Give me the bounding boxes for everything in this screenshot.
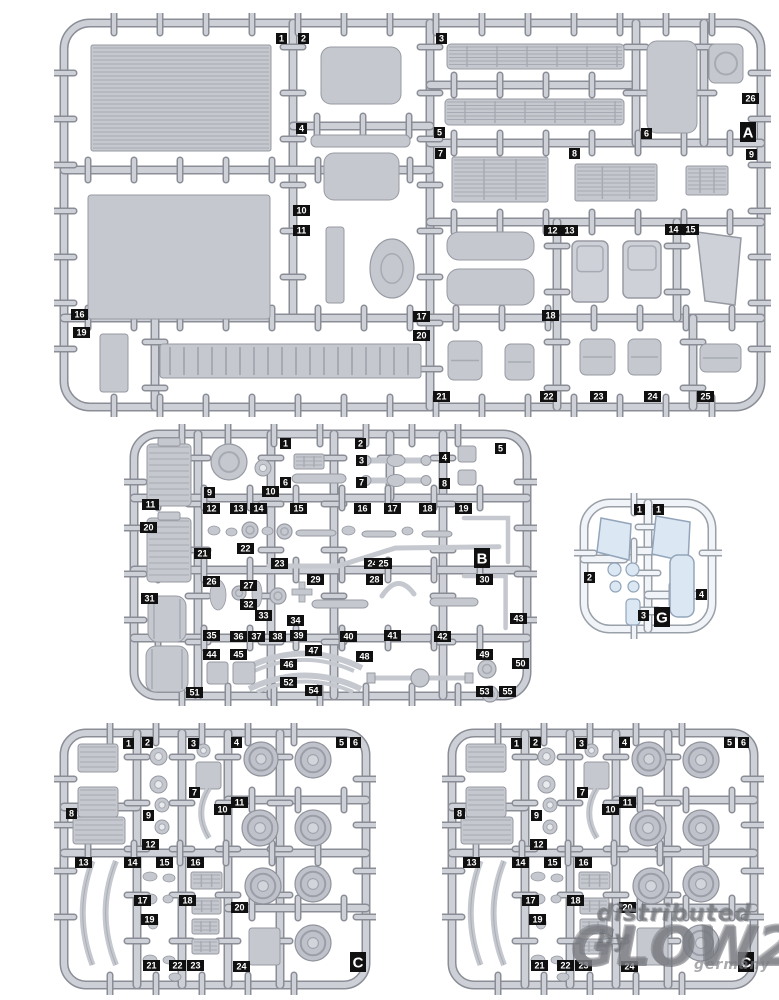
part-number-chip: 27 — [240, 580, 257, 591]
svg-text:23: 23 — [190, 961, 200, 971]
part-number-chip: 43 — [510, 613, 527, 624]
svg-text:48: 48 — [359, 652, 369, 662]
svg-text:25: 25 — [378, 559, 388, 569]
part-number-chip: 8 — [569, 148, 580, 159]
part-number-chip: 6 — [350, 737, 361, 748]
svg-text:15: 15 — [685, 225, 695, 235]
svg-text:17: 17 — [387, 504, 397, 514]
part-number-chip: 14 — [124, 857, 141, 868]
svg-text:19: 19 — [532, 915, 542, 925]
part-number-chip: 3 — [436, 33, 447, 44]
part-number-chip: 1 — [280, 438, 291, 449]
part-number-chip: 10 — [214, 804, 231, 815]
svg-text:2: 2 — [358, 439, 363, 449]
part-number-chip: 2 — [530, 737, 541, 748]
part-number-chip: 51 — [186, 687, 203, 698]
part-number-chip: 11 — [142, 499, 159, 510]
svg-text:16: 16 — [190, 858, 200, 868]
svg-text:20: 20 — [622, 903, 632, 913]
part-number-chip: 30 — [476, 574, 493, 585]
part-number-chip: 12 — [203, 503, 220, 514]
svg-text:6: 6 — [353, 738, 358, 748]
part-number-chip: 7 — [435, 148, 446, 159]
svg-text:7: 7 — [359, 478, 364, 488]
part-number-chip: 4 — [696, 589, 707, 600]
sprue-letter-chip: C — [350, 952, 366, 972]
svg-text:17: 17 — [525, 896, 535, 906]
svg-text:18: 18 — [422, 504, 432, 514]
svg-text:1: 1 — [283, 439, 288, 449]
part-number-chip: 23 — [575, 960, 592, 971]
part-number-chip: 13 — [561, 225, 578, 236]
svg-text:14: 14 — [127, 858, 137, 868]
svg-text:9: 9 — [749, 150, 754, 160]
svg-text:24: 24 — [236, 962, 246, 972]
svg-text:11: 11 — [235, 798, 245, 808]
part-number-chip: 4 — [231, 737, 242, 748]
svg-text:35: 35 — [206, 631, 216, 641]
svg-text:15: 15 — [293, 504, 303, 514]
part-number-chip: 7 — [577, 787, 588, 798]
svg-text:41: 41 — [387, 631, 397, 641]
sprue-letter-chip: B — [474, 548, 490, 568]
svg-text:21: 21 — [197, 549, 207, 559]
part-number-chip: 12 — [142, 839, 159, 850]
svg-text:1: 1 — [126, 739, 131, 749]
part-number-chip: 33 — [255, 610, 272, 621]
part-number-chip: 9 — [746, 149, 757, 160]
part-number-chip: 21 — [143, 960, 160, 971]
svg-text:11: 11 — [297, 226, 307, 236]
part-number-chip: 15 — [544, 857, 561, 868]
svg-text:5: 5 — [437, 128, 442, 138]
part-number-chip: 17 — [413, 311, 430, 322]
part-number-chip: 26 — [742, 93, 759, 104]
svg-text:16: 16 — [357, 504, 367, 514]
svg-text:4: 4 — [299, 124, 304, 134]
svg-text:9: 9 — [146, 811, 151, 821]
svg-text:12: 12 — [533, 840, 543, 850]
svg-text:B: B — [477, 551, 488, 568]
part-number-chip: 4 — [439, 452, 450, 463]
part-number-chip: 21 — [433, 391, 450, 402]
svg-text:22: 22 — [240, 544, 250, 554]
svg-text:44: 44 — [206, 650, 216, 660]
part-number-chip: 52 — [280, 677, 297, 688]
part-number-chip: 9 — [204, 487, 215, 498]
part-number-chip: 19 — [455, 503, 472, 514]
svg-text:18: 18 — [182, 896, 192, 906]
svg-text:3: 3 — [191, 739, 196, 749]
svg-text:9: 9 — [534, 811, 539, 821]
svg-text:5: 5 — [339, 738, 344, 748]
svg-text:52: 52 — [283, 678, 293, 688]
svg-text:12: 12 — [206, 504, 216, 514]
part-number-chip: 25 — [697, 391, 714, 402]
part-number-chip: 49 — [476, 649, 493, 660]
part-number-chip: 24 — [621, 961, 638, 972]
part-number-chip: 16 — [575, 857, 592, 868]
svg-text:39: 39 — [293, 631, 303, 641]
part-number-chip: 6 — [280, 477, 291, 488]
svg-text:24: 24 — [647, 392, 657, 402]
part-number-chip: 11 — [231, 797, 248, 808]
svg-text:13: 13 — [564, 226, 574, 236]
svg-text:43: 43 — [513, 614, 523, 624]
svg-text:10: 10 — [265, 487, 275, 497]
svg-text:12: 12 — [145, 840, 155, 850]
part-number-chip: 3 — [638, 610, 649, 621]
sprue-letter-chip: A — [740, 122, 756, 142]
svg-text:50: 50 — [515, 659, 525, 669]
part-number-chip: 3 — [188, 738, 199, 749]
svg-text:51: 51 — [189, 688, 199, 698]
part-number-chip: 8 — [439, 478, 450, 489]
svg-text:23: 23 — [593, 392, 603, 402]
part-number-chip: 35 — [203, 630, 220, 641]
svg-text:29: 29 — [310, 575, 320, 585]
svg-text:8: 8 — [572, 149, 577, 159]
svg-text:22: 22 — [560, 961, 570, 971]
part-number-chip: 22 — [557, 960, 574, 971]
svg-text:3: 3 — [439, 34, 444, 44]
part-number-chip: 4 — [619, 737, 630, 748]
svg-text:6: 6 — [644, 129, 649, 139]
svg-text:3: 3 — [359, 456, 364, 466]
svg-text:11: 11 — [146, 500, 156, 510]
part-number-chip: 32 — [240, 599, 257, 610]
part-number-chip: 16 — [71, 309, 88, 320]
part-number-chip: 9 — [531, 810, 542, 821]
sprue-g-drawing: 11234G — [574, 493, 722, 639]
part-number-chip: 1 — [634, 504, 645, 515]
part-number-chip: 5 — [336, 737, 347, 748]
part-number-chip: 2 — [355, 438, 366, 449]
part-number-chip: 23 — [590, 391, 607, 402]
part-number-chip: 24 — [644, 391, 661, 402]
svg-text:19: 19 — [144, 915, 154, 925]
part-number-chip: 48 — [356, 651, 373, 662]
part-number-chip: 23 — [271, 558, 288, 569]
svg-text:C: C — [741, 955, 752, 972]
part-number-chip: 16 — [187, 857, 204, 868]
svg-text:21: 21 — [146, 961, 156, 971]
part-number-chip: 14 — [665, 224, 682, 235]
part-number-chip: 19 — [141, 914, 158, 925]
part-number-chip: 13 — [463, 857, 480, 868]
part-number-chip: 15 — [156, 857, 173, 868]
svg-text:8: 8 — [69, 809, 74, 819]
svg-text:9: 9 — [207, 488, 212, 498]
svg-text:7: 7 — [580, 788, 585, 798]
part-number-chip: 28 — [366, 574, 383, 585]
svg-text:7: 7 — [192, 788, 197, 798]
part-number-chip: 41 — [384, 630, 401, 641]
part-number-chip: 13 — [75, 857, 92, 868]
part-number-chip: 8 — [454, 808, 465, 819]
part-number-chip: 47 — [305, 645, 322, 656]
part-number-chip: 22 — [540, 391, 557, 402]
svg-text:37: 37 — [251, 632, 261, 642]
part-number-chip: 10 — [262, 486, 279, 497]
part-number-chip: 5 — [434, 127, 445, 138]
svg-text:15: 15 — [547, 858, 557, 868]
svg-text:36: 36 — [233, 632, 243, 642]
svg-text:30: 30 — [479, 575, 489, 585]
svg-text:19: 19 — [458, 504, 468, 514]
svg-text:8: 8 — [442, 479, 447, 489]
svg-text:20: 20 — [234, 903, 244, 913]
svg-text:34: 34 — [290, 616, 300, 626]
part-number-chip: 42 — [434, 631, 451, 642]
svg-text:20: 20 — [416, 331, 426, 341]
part-number-chip: 39 — [290, 630, 307, 641]
svg-text:23: 23 — [578, 961, 588, 971]
part-number-chip: 1 — [511, 738, 522, 749]
part-number-chip: 24 — [233, 961, 250, 972]
svg-text:17: 17 — [416, 312, 426, 322]
svg-text:22: 22 — [543, 392, 553, 402]
part-number-chip: 17 — [522, 895, 539, 906]
svg-text:55: 55 — [502, 687, 512, 697]
part-number-chip: 21 — [531, 960, 548, 971]
svg-text:10: 10 — [296, 206, 306, 216]
svg-text:5: 5 — [727, 738, 732, 748]
part-number-chip: 29 — [307, 574, 324, 585]
part-number-chip: 18 — [179, 895, 196, 906]
svg-text:23: 23 — [274, 559, 284, 569]
part-number-chip: 38 — [269, 631, 286, 642]
svg-text:25: 25 — [700, 392, 710, 402]
svg-text:4: 4 — [234, 738, 239, 748]
part-number-chip: 55 — [499, 686, 516, 697]
part-number-chip: 14 — [250, 503, 267, 514]
svg-text:13: 13 — [466, 858, 476, 868]
svg-text:14: 14 — [253, 504, 263, 514]
svg-text:26: 26 — [206, 577, 216, 587]
part-number-chip: 1 — [653, 504, 664, 515]
part-number-chip: 7 — [356, 477, 367, 488]
svg-text:13: 13 — [78, 858, 88, 868]
part-number-chip: 20 — [231, 902, 248, 913]
sprue-letter-chip: G — [654, 607, 670, 627]
svg-text:38: 38 — [272, 632, 282, 642]
svg-text:27: 27 — [243, 581, 253, 591]
svg-text:20: 20 — [143, 523, 153, 533]
part-number-chip: 2 — [584, 572, 595, 583]
part-number-chip: 31 — [141, 593, 158, 604]
svg-text:18: 18 — [570, 896, 580, 906]
part-number-chip: 2 — [142, 737, 153, 748]
part-number-chip: 25 — [375, 558, 392, 569]
part-number-chip: 14 — [512, 857, 529, 868]
svg-text:21: 21 — [534, 961, 544, 971]
svg-text:47: 47 — [308, 646, 318, 656]
sprue-layout-sheet: 1232694567810111213141516191720182122232… — [0, 0, 779, 1000]
part-number-chip: 37 — [248, 631, 265, 642]
part-number-chip: 1 — [123, 738, 134, 749]
part-number-chip: 22 — [169, 960, 186, 971]
svg-text:C: C — [353, 955, 364, 972]
part-number-chip: 11 — [619, 797, 636, 808]
part-number-chip: 17 — [134, 895, 151, 906]
svg-text:45: 45 — [233, 650, 243, 660]
sprue-letter-chip: C — [738, 952, 754, 972]
part-number-chip: 18 — [567, 895, 584, 906]
part-number-chip: 45 — [230, 649, 247, 660]
svg-text:8: 8 — [457, 809, 462, 819]
part-number-chip: 13 — [230, 503, 247, 514]
svg-text:24: 24 — [624, 962, 634, 972]
part-number-chip: 21 — [194, 548, 211, 559]
part-number-chip: 50 — [512, 658, 529, 669]
svg-text:33: 33 — [258, 611, 268, 621]
svg-text:3: 3 — [641, 611, 646, 621]
svg-text:1: 1 — [279, 34, 284, 44]
part-number-chip: 8 — [66, 808, 77, 819]
svg-text:2: 2 — [587, 573, 592, 583]
svg-text:4: 4 — [622, 738, 627, 748]
svg-text:11: 11 — [623, 798, 633, 808]
svg-text:6: 6 — [283, 478, 288, 488]
svg-text:32: 32 — [243, 600, 253, 610]
part-number-chip: 9 — [143, 810, 154, 821]
part-number-chip: 22 — [237, 543, 254, 554]
svg-text:12: 12 — [547, 226, 557, 236]
part-number-chip: 23 — [187, 960, 204, 971]
svg-text:1: 1 — [656, 505, 661, 515]
part-number-chip: 12 — [544, 225, 561, 236]
part-number-chip: 16 — [354, 503, 371, 514]
svg-text:10: 10 — [605, 805, 615, 815]
svg-text:26: 26 — [745, 94, 755, 104]
svg-text:2: 2 — [533, 738, 538, 748]
svg-text:13: 13 — [233, 504, 243, 514]
part-number-chip: 10 — [293, 205, 310, 216]
svg-text:16: 16 — [578, 858, 588, 868]
part-number-chip: 11 — [293, 225, 310, 236]
part-number-chip: 5 — [724, 737, 735, 748]
sprue-c2-drawing: 123456789101112131415161718192021222324C — [442, 723, 764, 995]
svg-text:6: 6 — [741, 738, 746, 748]
svg-text:14: 14 — [515, 858, 525, 868]
part-number-chip: 20 — [619, 902, 636, 913]
svg-text:54: 54 — [308, 686, 318, 696]
part-number-chip: 15 — [682, 224, 699, 235]
svg-text:14: 14 — [668, 225, 678, 235]
svg-text:1: 1 — [637, 505, 642, 515]
part-number-chip: 44 — [203, 649, 220, 660]
part-number-chip: 34 — [287, 615, 304, 626]
svg-text:2: 2 — [301, 34, 306, 44]
part-number-chip: 40 — [340, 631, 357, 642]
part-number-chip: 19 — [73, 327, 90, 338]
part-number-chip: 20 — [140, 522, 157, 533]
svg-text:53: 53 — [479, 687, 489, 697]
svg-text:31: 31 — [144, 594, 154, 604]
svg-text:2: 2 — [145, 738, 150, 748]
sprue-b-drawing: 1234567891011121314151617181920212223242… — [124, 424, 537, 706]
part-number-chip: 46 — [280, 659, 297, 670]
svg-text:5: 5 — [498, 444, 503, 454]
part-number-chip: 36 — [230, 631, 247, 642]
part-number-chip: 26 — [203, 576, 220, 587]
part-number-chip: 54 — [305, 685, 322, 696]
svg-text:3: 3 — [579, 739, 584, 749]
part-number-chip: 2 — [298, 33, 309, 44]
svg-text:4: 4 — [699, 590, 704, 600]
svg-text:G: G — [656, 610, 668, 627]
svg-text:A: A — [743, 125, 754, 142]
part-number-chip: 7 — [189, 787, 200, 798]
part-number-chip: 10 — [602, 804, 619, 815]
svg-text:49: 49 — [479, 650, 489, 660]
svg-text:40: 40 — [343, 632, 353, 642]
svg-text:4: 4 — [442, 453, 447, 463]
svg-text:19: 19 — [76, 328, 86, 338]
sprue-a-drawing: 1232694567810111213141516191720182122232… — [54, 13, 771, 417]
part-number-chip: 18 — [542, 310, 559, 321]
svg-text:21: 21 — [436, 392, 446, 402]
part-number-chip: 1 — [276, 33, 287, 44]
svg-text:7: 7 — [438, 149, 443, 159]
part-number-chip: 6 — [738, 737, 749, 748]
part-number-chip: 4 — [296, 123, 307, 134]
svg-text:16: 16 — [74, 310, 84, 320]
part-number-chip: 3 — [356, 455, 367, 466]
part-number-chip: 18 — [419, 503, 436, 514]
part-number-chip: 17 — [384, 503, 401, 514]
part-number-chip: 12 — [530, 839, 547, 850]
part-number-chip: 53 — [476, 686, 493, 697]
svg-text:10: 10 — [217, 805, 227, 815]
part-number-chip: 15 — [290, 503, 307, 514]
svg-text:22: 22 — [172, 961, 182, 971]
svg-text:1: 1 — [514, 739, 519, 749]
part-number-chip: 6 — [641, 128, 652, 139]
sprue-c-drawing: 123456789101112131415161718192021222324C — [54, 723, 376, 995]
svg-text:17: 17 — [137, 896, 147, 906]
part-number-chip: 5 — [495, 443, 506, 454]
svg-text:28: 28 — [369, 575, 379, 585]
svg-text:18: 18 — [545, 311, 555, 321]
part-number-chip: 3 — [576, 738, 587, 749]
part-number-chip: 19 — [529, 914, 546, 925]
svg-text:15: 15 — [159, 858, 169, 868]
svg-text:42: 42 — [437, 632, 447, 642]
part-number-chip: 20 — [413, 330, 430, 341]
svg-text:46: 46 — [283, 660, 293, 670]
